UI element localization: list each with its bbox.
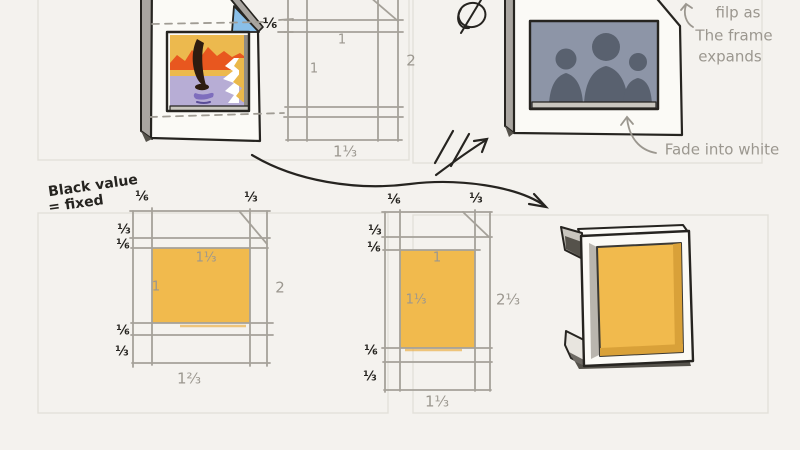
tl-border-fraction: ⅙	[263, 17, 278, 31]
bm-bottom-total: 1⅓	[425, 395, 449, 410]
bl-left-row-2: ⅙	[116, 325, 129, 338]
bl-inner-height: 1	[152, 281, 160, 294]
bottom-right-frame-sketch	[561, 225, 693, 369]
bl-top-col-left: ⅙	[135, 191, 148, 204]
bm-left-row-2: ⅙	[364, 345, 377, 358]
orange-picture-area	[597, 243, 683, 356]
flip-note-line1: filp as	[716, 6, 761, 21]
bm-top-col-left: ⅙	[387, 194, 400, 207]
bl-bottom-total: 1⅔	[177, 372, 201, 387]
diagonal-mark	[240, 212, 267, 244]
diagonal-mark	[463, 212, 489, 237]
bl-left-row-3: ⅓	[115, 346, 128, 359]
bm-inner-height: 1⅓	[406, 294, 427, 307]
bm-left-row-0: ⅓	[368, 225, 381, 238]
crossed-arrow	[435, 131, 487, 175]
family-photo	[530, 21, 658, 109]
flip-note-line2: The frame	[695, 29, 772, 44]
bl-right-total: 2	[275, 281, 285, 296]
bm-left-row-3: ⅓	[363, 371, 376, 384]
fade-note: Fade into white	[665, 143, 780, 158]
tm-width-label: 1	[338, 34, 346, 47]
bm-inner-width: 1	[433, 252, 441, 265]
tm-right-total: 2	[406, 54, 416, 69]
sunset-painting	[167, 32, 249, 111]
top-middle-measurement-grid	[284, 0, 403, 141]
bm-left-row-1: ⅙	[367, 242, 380, 255]
bottom-middle-measurement-grid	[382, 210, 492, 392]
bm-top-col-right: ⅓	[469, 193, 482, 206]
diagonal-mark	[370, 0, 398, 21]
flip-note-line3: expands	[698, 50, 761, 65]
bl-left-row-0: ⅓	[117, 224, 130, 237]
tm-bottom-total: 1⅓	[333, 145, 357, 160]
top-right-frame-sketch	[505, 0, 682, 137]
sketch-canvas[interactable]: ⅙ 1 1 2 1⅓ filp as The frame expands Fad…	[0, 0, 800, 450]
bl-left-row-1: ⅙	[116, 239, 129, 252]
no-symbol-doodle	[456, 0, 487, 33]
flip-arrow-icon	[681, 4, 693, 27]
bl-inner-width: 1⅓	[196, 252, 217, 265]
bl-top-col-right: ⅓	[244, 192, 257, 205]
bm-right-total: 2⅓	[496, 293, 520, 308]
tm-height-label: 1	[310, 63, 318, 76]
